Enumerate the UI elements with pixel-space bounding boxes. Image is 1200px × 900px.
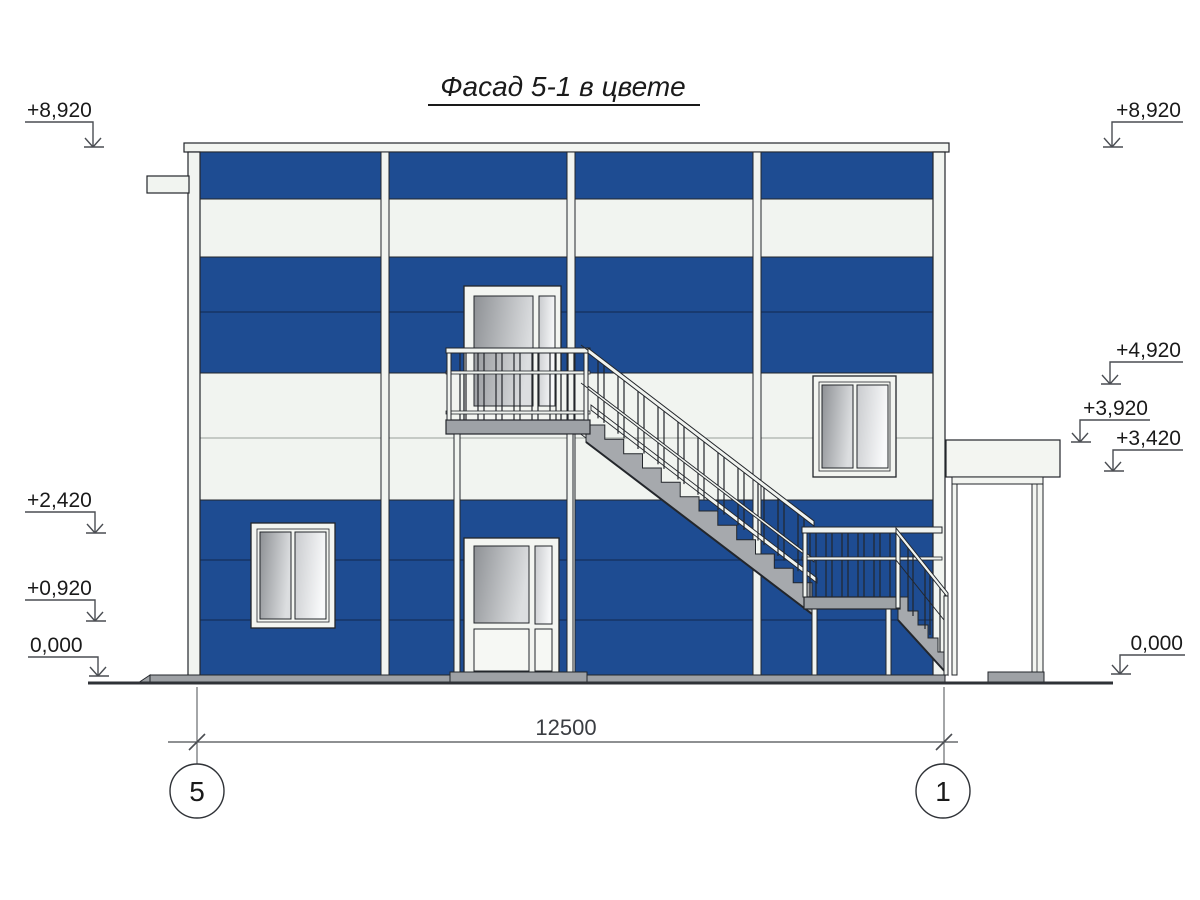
door-sidelight-panel xyxy=(535,629,552,671)
dimension-and-axes xyxy=(168,687,970,818)
corner-pilaster-right xyxy=(933,152,945,676)
elevation-marker-right-0000 xyxy=(1111,655,1185,674)
lower-landing xyxy=(804,597,900,609)
axis-label-5: 5 xyxy=(189,776,205,807)
window-pane xyxy=(822,385,853,468)
elevation-marker-left-0000 xyxy=(28,657,109,676)
drawing-title: Фасад 5-1 в цвете xyxy=(440,71,685,102)
corner-pilaster-left xyxy=(188,152,200,676)
porch-post-left xyxy=(952,484,957,675)
elevation-marker-left-8920 xyxy=(25,122,104,147)
window-right xyxy=(813,376,896,477)
parapet-cap xyxy=(184,143,949,152)
window-pane xyxy=(260,532,291,619)
elevation-label-left-2420: +2,420 xyxy=(27,489,92,512)
roof-outlet-pipe xyxy=(147,176,189,193)
porch-post-right xyxy=(1032,484,1043,675)
door-glass xyxy=(474,546,529,623)
upper-landing xyxy=(446,420,590,434)
window-left xyxy=(251,523,335,628)
elevation-label-left-0920: +0,920 xyxy=(27,577,92,600)
door-bottom-panel xyxy=(474,629,529,671)
balcony-top-rail xyxy=(446,348,590,353)
elevation-marker-left-2420 xyxy=(25,512,106,533)
elevation-marker-right-4920 xyxy=(1101,362,1183,384)
landing-top-rail xyxy=(802,527,942,533)
entrance-canopy xyxy=(946,440,1060,675)
elevation-label-right-8920: +8,920 xyxy=(1116,99,1181,122)
elevation-label-right-4920: +4,920 xyxy=(1116,339,1181,362)
elevation-label-right-0000: 0,000 xyxy=(1130,632,1183,655)
dimension-value: 12500 xyxy=(535,715,596,740)
elevation-label-right-3420: +3,420 xyxy=(1116,427,1181,450)
elevation-label-right-3920: +3,920 xyxy=(1083,397,1148,420)
facade-drawing-canvas: Фасад 5-1 в цвете +8,920 +2,420 +0,920 0… xyxy=(0,0,1200,900)
elevation-marker-right-3420 xyxy=(1104,450,1183,471)
elevation-label-left-8920: +8,920 xyxy=(27,99,92,122)
drawing-sheet: Фасад 5-1 в цвете +8,920 +2,420 +0,920 0… xyxy=(0,0,1200,900)
elevation-marker-left-0920 xyxy=(25,600,106,621)
porch-threshold xyxy=(988,672,1044,683)
window-pane xyxy=(295,532,326,619)
window-pane xyxy=(857,385,888,468)
door-threshold xyxy=(450,672,587,683)
elevation-marker-right-8920 xyxy=(1103,122,1183,147)
elevation-label-left-0000: 0,000 xyxy=(30,634,83,657)
door-sidelight xyxy=(535,546,552,624)
axis-label-1: 1 xyxy=(935,776,951,807)
door-ground xyxy=(464,538,559,675)
